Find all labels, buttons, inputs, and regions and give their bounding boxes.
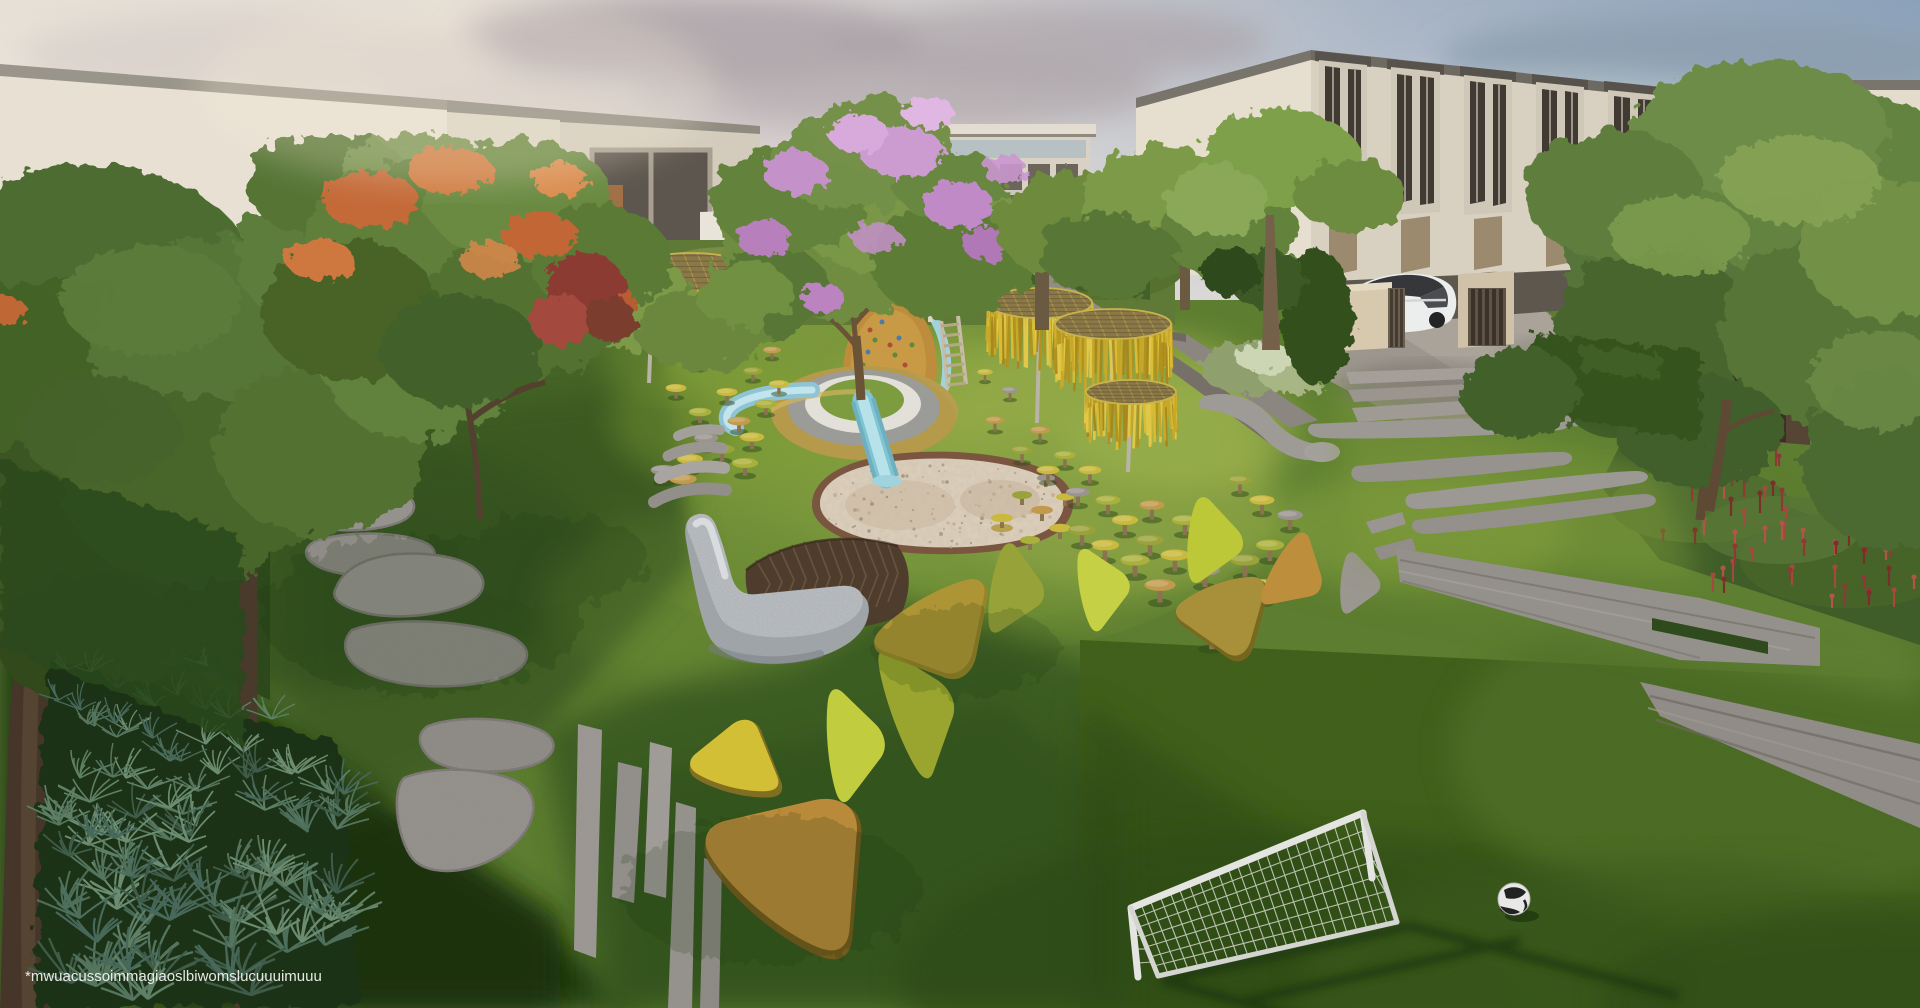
svg-text:*mwuacussoimmagiaoslbiwomslucu: *mwuacussoimmagiaoslbiwomslucuuuimuuu — [25, 968, 322, 985]
